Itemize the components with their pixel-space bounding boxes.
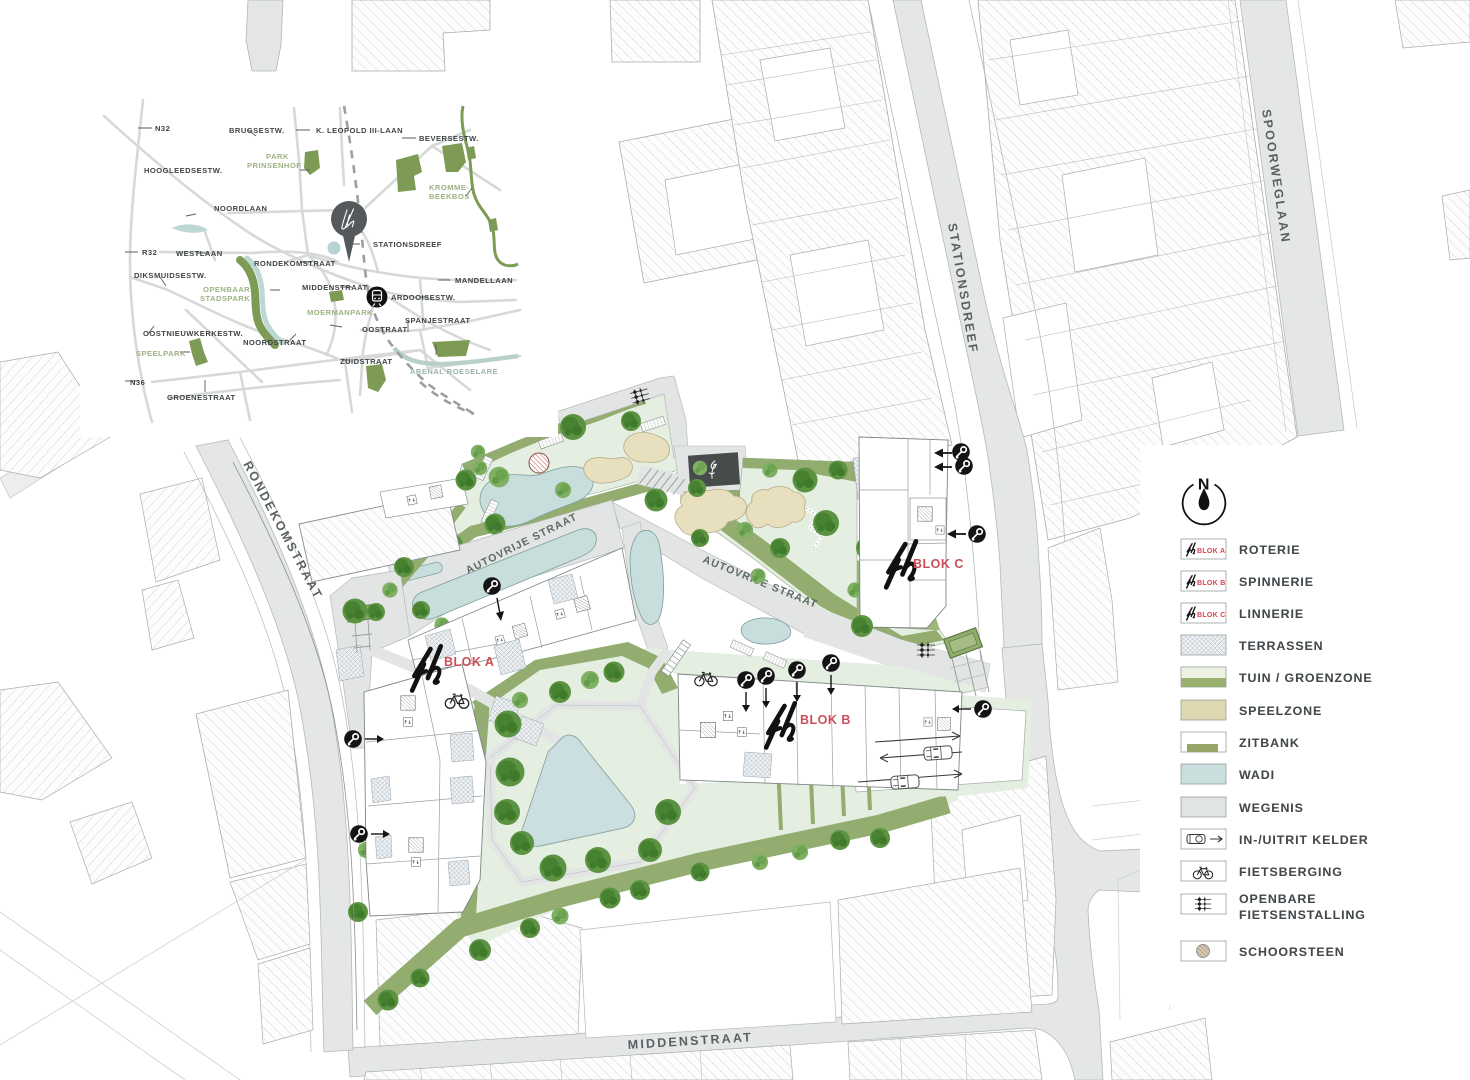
- svg-text:OPENBARE: OPENBARE: [1239, 892, 1316, 906]
- svg-text:ZUIDSTRAAT: ZUIDSTRAAT: [340, 357, 392, 366]
- svg-text:OPENBAAR: OPENBAAR: [203, 285, 250, 294]
- svg-text:BLOK B: BLOK B: [1197, 580, 1226, 587]
- svg-text:TUIN / GROENZONE: TUIN / GROENZONE: [1239, 671, 1373, 685]
- svg-text:WADI: WADI: [1239, 768, 1275, 782]
- svg-text:KROMME-: KROMME-: [429, 183, 469, 192]
- svg-text:ARENAL ROESELARE: ARENAL ROESELARE: [410, 367, 498, 376]
- svg-text:WEGENIS: WEGENIS: [1239, 801, 1304, 815]
- svg-text:SCHOORSTEEN: SCHOORSTEEN: [1239, 945, 1345, 959]
- svg-text:TERRASSEN: TERRASSEN: [1239, 639, 1324, 653]
- svg-text:N36: N36: [130, 378, 145, 387]
- svg-text:BLOK A: BLOK A: [444, 655, 494, 669]
- svg-text:FIETSENSTALLING: FIETSENSTALLING: [1239, 908, 1366, 922]
- svg-text:MIDDENSTRAAT: MIDDENSTRAAT: [302, 283, 368, 292]
- svg-text:LINNERIE: LINNERIE: [1239, 607, 1304, 621]
- svg-text:IN-/UITRIT KELDER: IN-/UITRIT KELDER: [1239, 833, 1369, 847]
- svg-text:BRUGSESTW.: BRUGSESTW.: [229, 126, 285, 135]
- svg-text:BLOK C: BLOK C: [913, 557, 964, 571]
- svg-text:FIETSBERGING: FIETSBERGING: [1239, 865, 1343, 879]
- svg-text:SPEELPARK: SPEELPARK: [136, 349, 186, 358]
- svg-text:MOERMANPARK: MOERMANPARK: [307, 308, 373, 317]
- svg-text:GROENESTRAAT: GROENESTRAAT: [167, 393, 236, 402]
- svg-text:DIKSMUIDSESTW.: DIKSMUIDSESTW.: [134, 271, 207, 280]
- svg-text:BEEKBOS: BEEKBOS: [429, 192, 470, 201]
- svg-text:K. LEOPOLD III-LAAN: K. LEOPOLD III-LAAN: [316, 126, 403, 135]
- svg-text:STADSPARK: STADSPARK: [200, 294, 250, 303]
- svg-text:ZITBANK: ZITBANK: [1239, 736, 1300, 750]
- svg-text:OOSTNIEUWKERKESTW.: OOSTNIEUWKERKESTW.: [143, 329, 243, 338]
- svg-text:RONDEKOMSTRAAT: RONDEKOMSTRAAT: [254, 259, 336, 268]
- svg-text:SPEELZONE: SPEELZONE: [1239, 704, 1322, 718]
- svg-text:PRINSENHOF: PRINSENHOF: [247, 161, 301, 170]
- svg-text:STATIONSDREEF: STATIONSDREEF: [373, 240, 442, 249]
- svg-text:BLOK A: BLOK A: [1197, 548, 1225, 555]
- svg-text:N32: N32: [155, 124, 170, 133]
- svg-text:NOORDSTRAAT: NOORDSTRAAT: [243, 338, 306, 347]
- svg-text:SPINNERIE: SPINNERIE: [1239, 575, 1314, 589]
- svg-text:ARDOOISESTW.: ARDOOISESTW.: [391, 293, 455, 302]
- svg-text:BEVERSESTW.: BEVERSESTW.: [419, 134, 479, 143]
- svg-text:OOSTRAAT: OOSTRAAT: [362, 325, 408, 334]
- svg-text:MANDELLAAN: MANDELLAAN: [455, 276, 513, 285]
- svg-text:BLOK B: BLOK B: [800, 713, 851, 727]
- svg-text:NOORDLAAN: NOORDLAAN: [214, 204, 267, 213]
- svg-text:ROTERIE: ROTERIE: [1239, 543, 1300, 557]
- svg-text:HOOGLEEDSESTW.: HOOGLEEDSESTW.: [144, 166, 222, 175]
- svg-text:WESTLAAN: WESTLAAN: [176, 249, 223, 258]
- svg-text:BLOK C: BLOK C: [1197, 612, 1226, 619]
- svg-text:R32: R32: [142, 248, 157, 257]
- svg-text:PARK: PARK: [266, 152, 289, 161]
- svg-text:SPANJESTRAAT: SPANJESTRAAT: [405, 316, 470, 325]
